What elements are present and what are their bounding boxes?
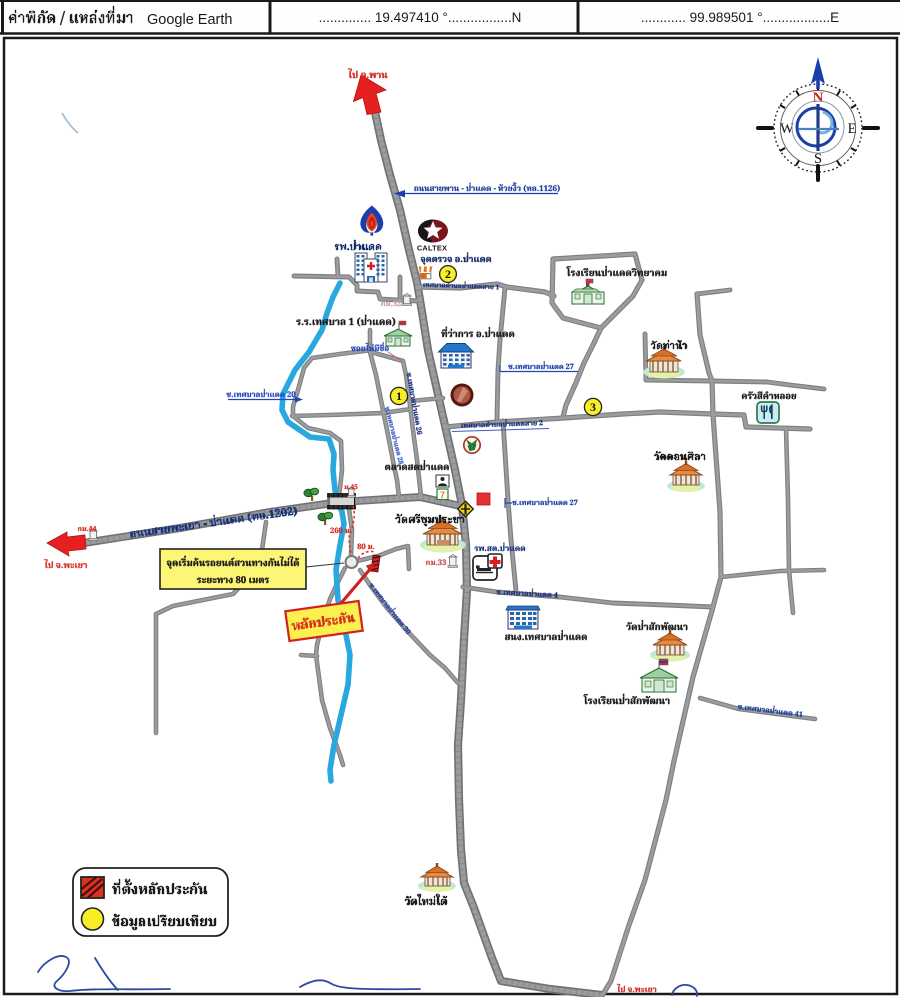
svg-text:E: E [848,121,857,137]
svg-text:.............. 19.497410 °...: .............. 19.497410 °..............… [319,10,522,25]
svg-text:7: 7 [440,490,445,500]
svg-text:1: 1 [396,389,402,403]
svg-text:CALTEX: CALTEX [417,244,447,253]
svg-text:N: N [813,90,824,106]
svg-text:2: 2 [445,267,451,281]
svg-text:Google Earth: Google Earth [147,12,232,28]
svg-text:3: 3 [590,400,596,414]
svg-text:............ 99.989501 °....: ............ 99.989501 °................… [641,10,839,25]
